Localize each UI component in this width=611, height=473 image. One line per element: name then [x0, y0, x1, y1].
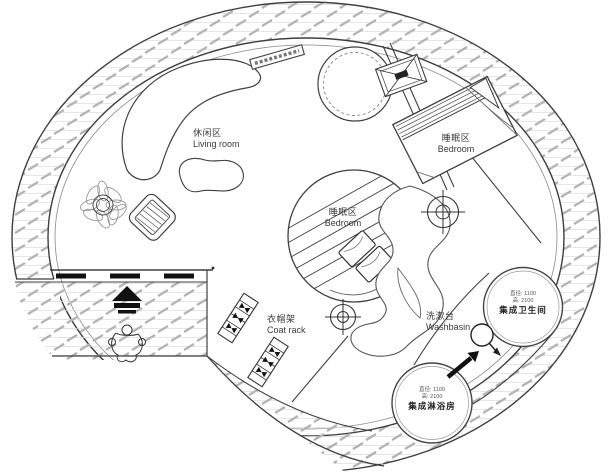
bedroom-center-label-zh: 睡眠区: [325, 207, 362, 218]
shower-pod-label: 直径: 1100 高: 2100 集成淋浴房: [408, 387, 456, 411]
direction-arrow: [448, 351, 479, 377]
washbasin-label-en: Washbasin: [426, 322, 470, 333]
coat-rack: [248, 337, 288, 387]
living-room-label: 休闲区 Living room: [193, 128, 240, 150]
bedroom-upper-label-zh: 睡眠区: [438, 133, 475, 144]
living-room-label-en: Living room: [193, 139, 240, 150]
coat-rack-label-en: Coat rack: [267, 325, 306, 336]
coat-rack-label-zh: 衣帽架: [267, 314, 306, 325]
floor-plan-drawing: [0, 0, 611, 473]
coat-rack-label: 衣帽架 Coat rack: [267, 314, 306, 336]
washbasin-label: 洗漱台 Washbasin: [426, 311, 470, 333]
bathroom-pod-label: 直径: 1100 高: 2100 集成卫生间: [499, 291, 547, 315]
bedroom-center-label: 睡眠区 Bedroom: [325, 207, 362, 229]
floor-plan: 休闲区 Living room 睡眠区 Bedroom 睡眠区 Bedroom …: [0, 0, 611, 473]
bedroom-center-label-en: Bedroom: [325, 218, 362, 229]
armchair: [127, 192, 179, 244]
coffee-table: [179, 158, 243, 191]
entrance-walkway: [15, 270, 213, 356]
bathroom-pod-dim2: 高: 2100: [499, 298, 547, 305]
shower-pod-name: 集成淋浴房: [408, 401, 456, 411]
coat-rack: [218, 293, 258, 343]
potted-plant: [79, 180, 129, 230]
living-room-label-zh: 休闲区: [193, 128, 240, 139]
shower-pod-dim2: 高: 2100: [408, 394, 456, 401]
bathroom-pod-name: 集成卫生间: [499, 305, 547, 315]
washbasin-label-zh: 洗漱台: [426, 311, 470, 322]
dot-marker: [212, 267, 215, 270]
bedroom-upper-label: 睡眠区 Bedroom: [438, 133, 475, 155]
bedroom-upper-label-en: Bedroom: [438, 144, 475, 155]
